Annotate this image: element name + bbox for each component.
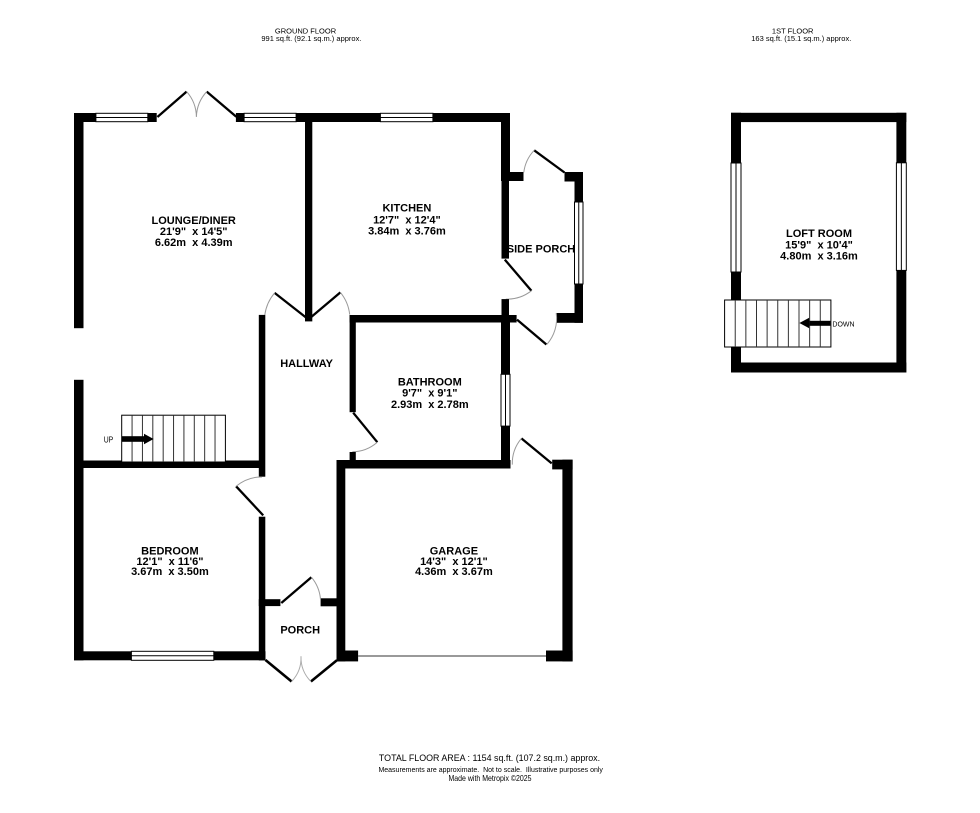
svg-text:4.36m x 3.67m: 4.36m x 3.67m [415, 566, 493, 578]
svg-text:Made with Metropix ©2025: Made with Metropix ©2025 [449, 773, 532, 783]
svg-text:3.84m x 3.76m: 3.84m x 3.76m [368, 226, 446, 238]
svg-text:DOWN: DOWN [832, 321, 854, 328]
svg-text:4.80m x 3.16m: 4.80m x 3.16m [780, 250, 858, 262]
svg-text:BATHROOM: BATHROOM [398, 376, 462, 388]
svg-text:163 sq.ft. (15.1 sq.m.) approx: 163 sq.ft. (15.1 sq.m.) approx. [751, 34, 851, 43]
svg-text:UP: UP [104, 435, 114, 445]
svg-text:2.93m x 2.78m: 2.93m x 2.78m [391, 399, 469, 411]
svg-text:PORCH: PORCH [280, 625, 320, 637]
svg-text:991 sq.ft. (92.1 sq.m.) approx: 991 sq.ft. (92.1 sq.m.) approx. [261, 34, 361, 43]
svg-text:6.62m x 4.39m: 6.62m x 4.39m [155, 237, 233, 249]
svg-text:3.67m x 3.50m: 3.67m x 3.50m [131, 566, 209, 578]
svg-text:HALLWAY: HALLWAY [280, 358, 333, 370]
svg-text:KITCHEN: KITCHEN [382, 202, 431, 214]
svg-text:SIDE PORCH: SIDE PORCH [507, 243, 576, 255]
svg-text:9'7" x 9'1": 9'7" x 9'1" [402, 388, 457, 400]
svg-text:TOTAL FLOOR AREA : 1154 sq.ft.: TOTAL FLOOR AREA : 1154 sq.ft. (107.2 sq… [379, 753, 600, 763]
